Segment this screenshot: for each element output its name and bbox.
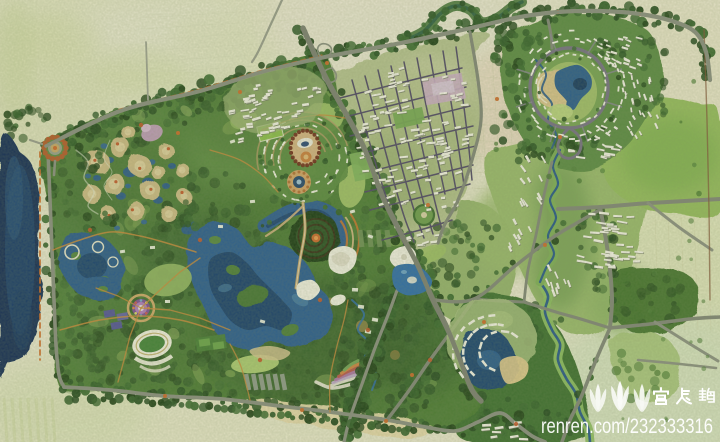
svg-text:renren.com/232333316: renren.com/232333316 xyxy=(541,415,713,438)
